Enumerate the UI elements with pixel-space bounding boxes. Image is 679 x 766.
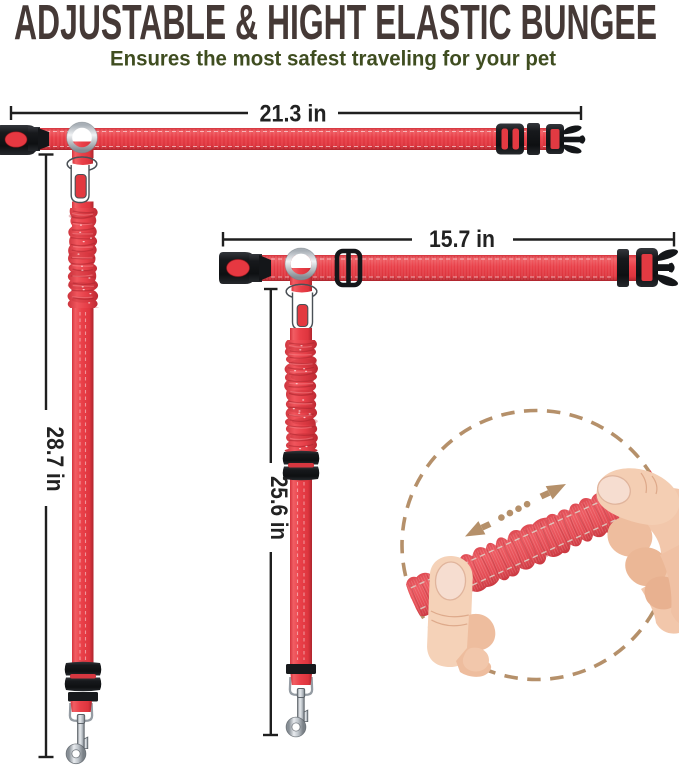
svg-text:15.7 in: 15.7 in bbox=[429, 226, 495, 253]
svg-text:ADJUSTABLE & HIGHT ELASTIC BUN: ADJUSTABLE & HIGHT ELASTIC BUNGEE bbox=[14, 0, 657, 50]
svg-text:28.7 in: 28.7 in bbox=[41, 427, 68, 492]
svg-text:Ensures the most safest travel: Ensures the most safest traveling for yo… bbox=[110, 48, 556, 71]
svg-text:25.6 in: 25.6 in bbox=[265, 476, 292, 540]
svg-text:21.3 in: 21.3 in bbox=[260, 101, 327, 128]
